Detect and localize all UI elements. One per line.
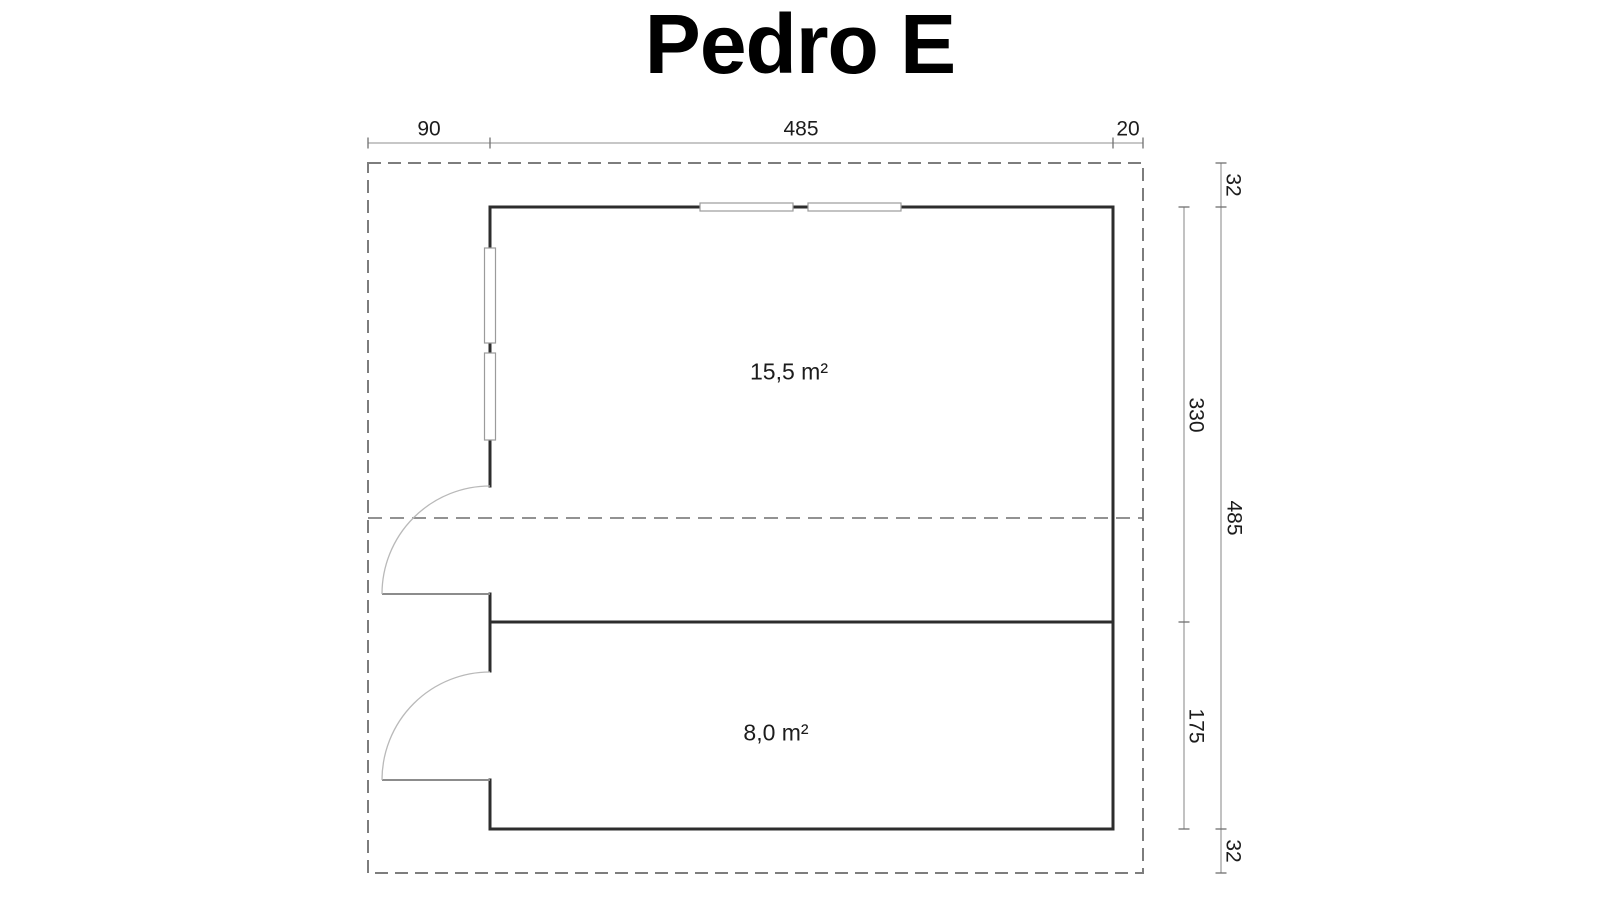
- door-swing-arc-main-room: [382, 486, 490, 594]
- dimension-ticks: [368, 138, 1227, 874]
- dim-label-porch-depth: 90: [417, 119, 440, 140]
- doors: [382, 486, 490, 780]
- window-top-left: [700, 203, 793, 211]
- room-area-label-main: 15,5 m²: [750, 361, 828, 384]
- dim-label-second-room-height: 175: [1186, 708, 1207, 743]
- windows: [485, 203, 902, 440]
- room-area-label-second: 8,0 m²: [743, 722, 808, 745]
- dim-label-right-overhang: 20: [1116, 119, 1139, 140]
- door-swing-arc-second-room: [382, 672, 490, 780]
- dim-label-top-overhang: 32: [1223, 173, 1244, 196]
- dim-label-building-height: 485: [1224, 500, 1245, 535]
- floor-plan-page: Pedro E: [0, 0, 1600, 900]
- window-top-right: [808, 203, 901, 211]
- dim-label-building-width: 485: [783, 119, 818, 140]
- window-left-upper: [485, 248, 496, 343]
- dim-label-main-room-height: 330: [1186, 397, 1207, 432]
- dim-label-bottom-overhang: 32: [1223, 839, 1244, 862]
- window-left-lower: [485, 353, 496, 440]
